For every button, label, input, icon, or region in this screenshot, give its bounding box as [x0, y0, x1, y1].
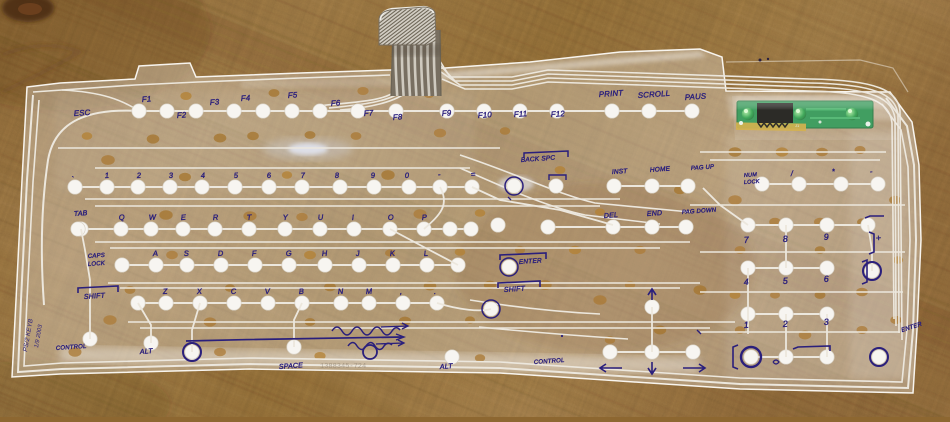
- svg-text:Q: Q: [119, 213, 126, 222]
- svg-text:PAUS: PAUS: [685, 91, 708, 102]
- svg-text:F10: F10: [478, 110, 493, 120]
- svg-text:CAPS: CAPS: [88, 253, 106, 260]
- svg-text:TAB: TAB: [74, 210, 88, 218]
- svg-text:B: B: [299, 287, 305, 296]
- svg-text:F1: F1: [142, 94, 152, 104]
- svg-text:F2: F2: [177, 110, 188, 120]
- svg-text:F3: F3: [210, 97, 221, 107]
- svg-text:S: S: [184, 249, 190, 258]
- svg-text:ALT: ALT: [439, 363, 454, 371]
- svg-text:F9: F9: [442, 108, 453, 118]
- svg-text:J: J: [355, 249, 361, 258]
- svg-text:F7: F7: [364, 108, 375, 118]
- svg-text:DEL: DEL: [604, 212, 619, 220]
- svg-text:F4: F4: [241, 93, 252, 103]
- svg-text:H: H: [322, 249, 329, 258]
- svg-text:+: +: [875, 233, 881, 243]
- svg-text:F8: F8: [393, 112, 404, 122]
- svg-text:LOCK: LOCK: [744, 179, 760, 186]
- svg-text:=: =: [471, 170, 477, 179]
- svg-text:5: 5: [782, 276, 788, 286]
- svg-text:LOCK: LOCK: [88, 261, 106, 268]
- svg-text:O: O: [388, 213, 395, 222]
- svg-text:HOME: HOME: [650, 166, 671, 174]
- svg-text:4: 4: [743, 277, 749, 287]
- svg-text:D: D: [218, 249, 225, 258]
- svg-text:N: N: [338, 287, 345, 296]
- svg-text:F5: F5: [288, 90, 299, 100]
- svg-text:F12: F12: [551, 109, 566, 119]
- svg-text:9: 9: [823, 232, 829, 242]
- svg-text:U: U: [318, 213, 325, 222]
- svg-text:6: 6: [823, 274, 829, 284]
- svg-text:F11: F11: [514, 109, 528, 119]
- svg-text:P: P: [422, 213, 428, 222]
- svg-text:W: W: [149, 212, 158, 222]
- svg-text:F6: F6: [331, 98, 342, 108]
- svg-text:4: 4: [201, 171, 206, 180]
- svg-text:1388345-724: 1388345-724: [320, 363, 366, 371]
- svg-text:R: R: [213, 213, 220, 222]
- svg-text:END: END: [647, 210, 663, 218]
- svg-text:A: A: [152, 249, 159, 258]
- svg-text:INST: INST: [612, 168, 629, 176]
- svg-text:PRINT: PRINT: [599, 88, 625, 99]
- svg-text:1: 1: [105, 171, 110, 180]
- svg-text:1: 1: [743, 320, 749, 330]
- svg-text:ESC: ESC: [74, 108, 91, 118]
- svg-text:F: F: [252, 249, 258, 258]
- svg-text:L: L: [424, 249, 429, 258]
- svg-text:C: C: [231, 287, 238, 296]
- svg-text:M: M: [366, 287, 374, 296]
- svg-text:Z: Z: [162, 287, 169, 296]
- svg-text:G: G: [286, 249, 293, 258]
- svg-text:3: 3: [823, 317, 829, 327]
- svg-text:ALT: ALT: [139, 348, 154, 356]
- svg-text:2: 2: [781, 319, 788, 329]
- svg-text:8: 8: [782, 234, 788, 244]
- svg-text:NUM: NUM: [744, 172, 758, 179]
